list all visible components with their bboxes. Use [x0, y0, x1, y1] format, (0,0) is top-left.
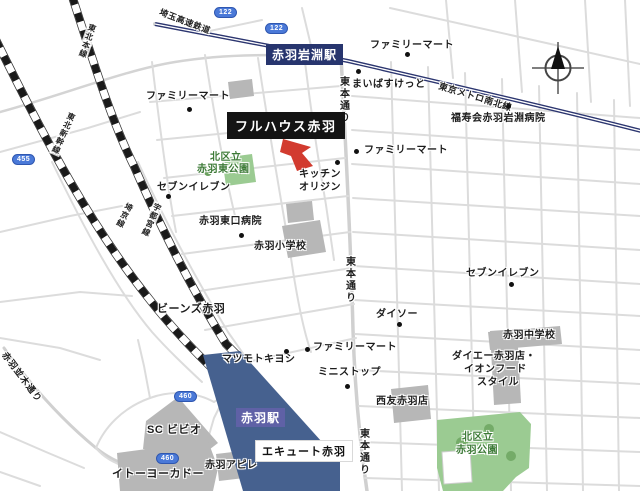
park-label: 赤羽東公園 — [197, 164, 250, 177]
poi-label-daiso: ダイソー — [376, 309, 418, 322]
tree-icon — [506, 451, 516, 461]
route-shield: 122 — [265, 23, 288, 34]
poi-label-ecute-akabane: エキュート赤羽 — [256, 441, 352, 461]
poi-dot — [284, 349, 289, 354]
map-canvas — [0, 0, 640, 491]
route-shield: 455 — [12, 154, 35, 165]
map-marker-arrow-icon — [280, 139, 313, 171]
poi-label-famima-east: ファミリーマート — [364, 145, 448, 158]
akabane-area-map: 赤羽岩淵駅 赤羽駅 フルハウス赤羽 122 122 455 460 460 東北… — [0, 0, 640, 491]
poi-dot — [354, 149, 359, 154]
park-label: 北区立 — [210, 152, 242, 165]
poi-label-junior-high: 赤羽中学校 — [503, 330, 556, 343]
poi-label-seven-eleven-east: セブンイレブン — [466, 268, 540, 281]
route-shield: 460 — [156, 453, 179, 464]
park-label: 北区立 — [462, 432, 494, 445]
poi-dot — [166, 194, 171, 199]
station-badge-akabane-iwabuchi: 赤羽岩淵駅 — [266, 44, 343, 65]
poi-label-ministop: ミニストップ — [318, 367, 381, 380]
poi-dot — [397, 322, 402, 327]
park-label: 赤羽公園 — [456, 445, 498, 458]
route-shield: 460 — [174, 391, 197, 402]
poi-label-famima-ne: ファミリーマート — [370, 40, 454, 53]
poi-dot — [345, 384, 350, 389]
poi-label-sc-bivio: SC ビビオ — [147, 424, 201, 438]
road-label-higashihon-dori: 東本通り — [356, 428, 369, 476]
poi-dot — [405, 52, 410, 57]
poi-dot — [187, 107, 192, 112]
poi-label-elementary-school: 赤羽小学校 — [254, 241, 307, 254]
property-callout-fullhouse-akabane: フルハウス赤羽 — [227, 112, 345, 139]
poi-label-itoyokado: イトーヨーカドー — [112, 468, 204, 482]
poi-label-kitchen-origin: オリジン — [299, 182, 341, 195]
building-hospital — [286, 201, 314, 223]
poi-label-daiei: ダイエー赤羽店・ — [452, 351, 536, 364]
poi-label-famima-south: ファミリーマート — [313, 342, 397, 355]
poi-label-higashiguchi-hospital: 赤羽東口病院 — [199, 216, 262, 229]
road-namiki-dori — [4, 348, 132, 466]
poi-label-seiyu: 西友赤羽店 — [376, 396, 429, 409]
poi-label-maibasuketto: まいばすけっと — [352, 79, 426, 92]
poi-dot — [239, 233, 244, 238]
poi-dot — [335, 160, 340, 165]
poi-label-akabane-apire: 赤羽アピレ — [205, 460, 258, 473]
poi-label-daiei: スタイル — [477, 377, 519, 390]
poi-label-fukujukai-hospital: 福寿会赤羽岩淵病院 — [451, 113, 546, 126]
road-label-higashihon-dori: 東本通り — [342, 256, 355, 304]
poi-label-seven-eleven-west: セブンイレブン — [157, 182, 231, 195]
poi-label-matsumoto-kiyoshi: マツモトキヨシ — [222, 354, 296, 367]
poi-label-daiei: イオンフード — [464, 364, 527, 377]
poi-label-famima-nw: ファミリーマート — [146, 91, 230, 104]
poi-dot — [305, 347, 310, 352]
poi-dot — [506, 104, 511, 109]
poi-dot — [356, 69, 361, 74]
building-small — [228, 79, 254, 99]
route-shield: 122 — [214, 7, 237, 18]
poi-label-beans-akabane: ビーンズ赤羽 — [157, 303, 225, 317]
building-itoyokado — [117, 441, 218, 491]
poi-dot — [509, 282, 514, 287]
station-badge-akabane: 赤羽駅 — [236, 408, 285, 427]
poi-label-kitchen-origin: キッチン — [299, 169, 341, 182]
